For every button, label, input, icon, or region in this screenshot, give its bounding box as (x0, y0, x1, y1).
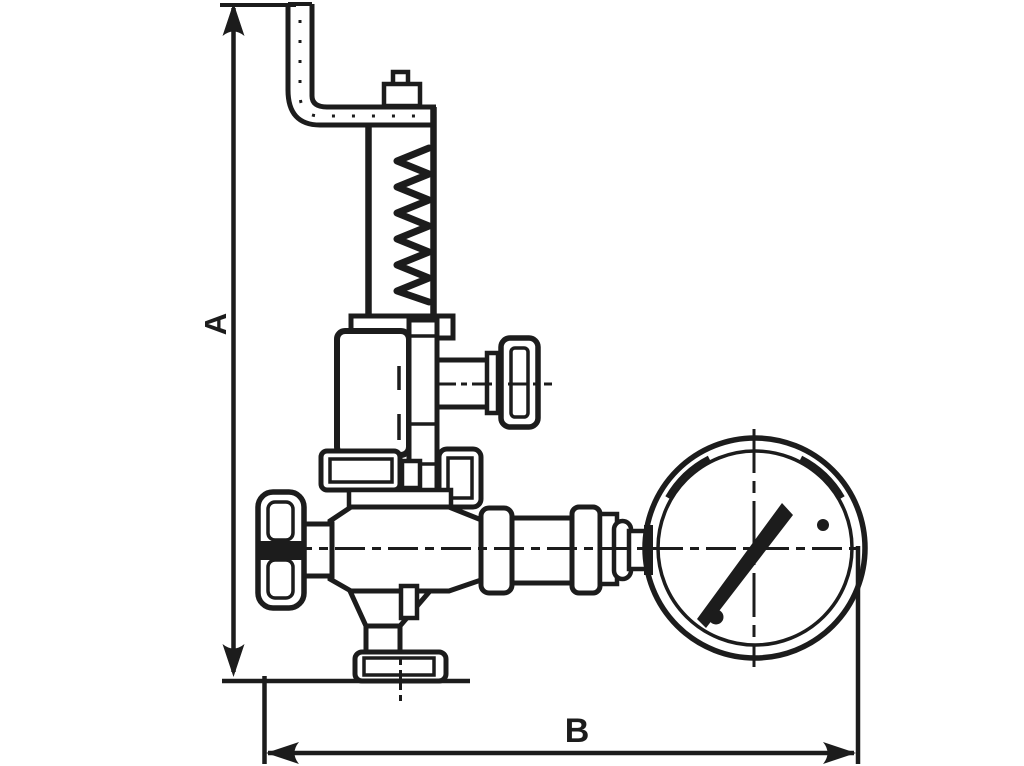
inlet-spindle-window (401, 586, 417, 618)
dim-a-arrow-up (223, 3, 245, 36)
spindle-cap (384, 72, 420, 106)
spindle-collar (402, 461, 420, 488)
handwheel-hub (260, 541, 302, 560)
relief-valve (258, 4, 653, 681)
technical-drawing-canvas: A B (0, 0, 1024, 766)
coil-spring (397, 148, 429, 302)
gauge-needle (697, 503, 793, 628)
body-top-plate (349, 490, 451, 507)
dim-a-arrow-down (223, 644, 245, 677)
valve-dimension-drawing: A B (0, 0, 1024, 766)
dim-b-label: B (565, 712, 590, 750)
cap-nut (384, 84, 420, 106)
union-nut-shell (321, 451, 400, 490)
dim-a-label: A (198, 313, 233, 335)
connection-pipe (512, 518, 573, 583)
pipe-union-nut (481, 508, 512, 593)
spring-housing (369, 107, 434, 322)
inlet-nipple (366, 626, 400, 652)
gauge-face-dot (817, 519, 829, 531)
inlet (350, 586, 446, 681)
dim-b-arrow-right (823, 742, 856, 764)
gauge-needle-counterweight (709, 610, 724, 625)
dim-b-arrow-left (266, 742, 299, 764)
